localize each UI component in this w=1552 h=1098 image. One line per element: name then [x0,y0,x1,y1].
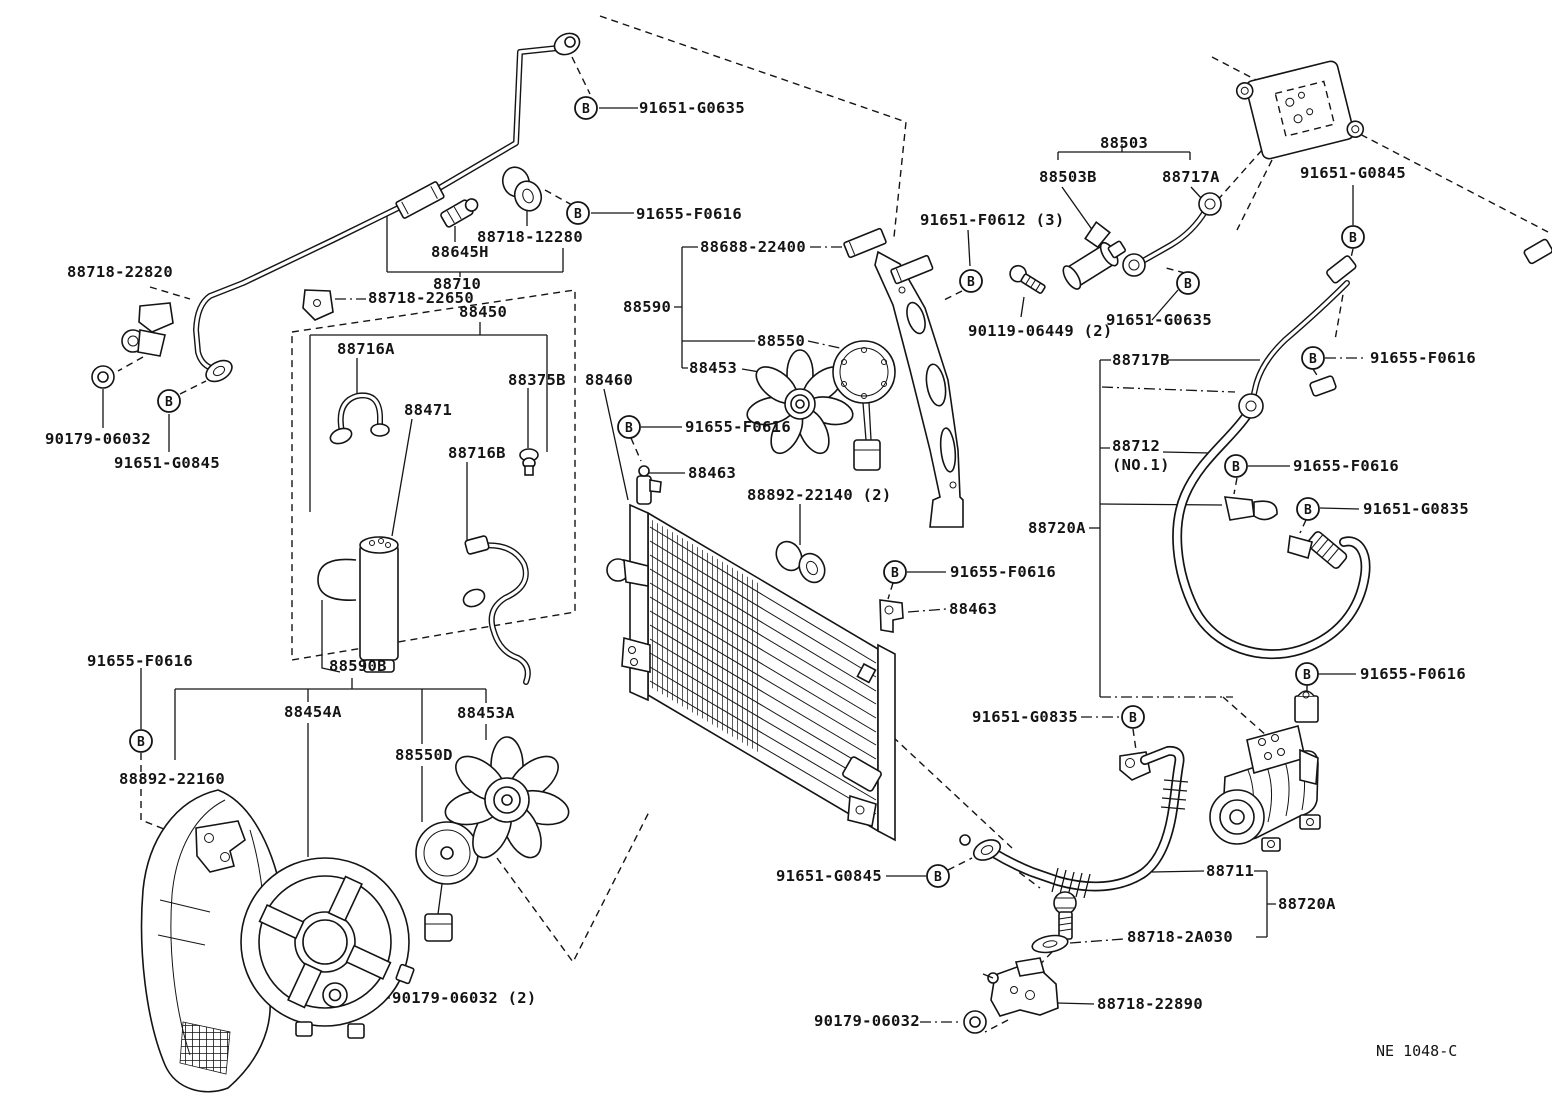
grommet-90179-06032-left2 [323,983,347,1007]
part-label-91651-F0612: 91651-F0612 (3) [920,211,1064,229]
block-91655-bolt-seat [1295,691,1318,722]
drawing-number: NE 1048-C [1376,1042,1457,1060]
bolt-b-icon: B [165,395,173,410]
valve-88645H [440,195,481,228]
condenser-88460 [607,505,895,840]
ac-parts-diagram: B B B B B B B B B B B B B B B 91651-G063… [0,0,1552,1098]
part-label-88718-22820: 88718-22820 [67,263,173,281]
discharge-hose-88711 [960,751,1188,898]
bolt-b-icon: B [625,421,633,436]
part-label-90179-06032: 90179-06032 [45,430,151,448]
part-label-88454A: 88454A [284,703,342,721]
part-label-91655-F0616d: 91655-F0616 [685,418,791,436]
part-label-88720A: 88720A [1028,519,1086,537]
bolt-b-icon: B [1232,460,1240,475]
part-label-88450: 88450 [459,303,507,321]
part-label-91651-G0835b: 91651-G0835 [972,708,1078,726]
part-label-88463b: 88463 [949,600,997,618]
grommet-90179-06032-bottom [964,1011,986,1033]
part-label-91651-G0635: 91651-G0635 [639,99,745,117]
bolt-88718-2A030 [1031,892,1076,955]
part-label-88716A: 88716A [337,340,395,358]
bracket-88718-22890 [983,958,1058,1016]
grommet-90179-06032-left [92,366,114,388]
compressor [1210,726,1320,851]
part-label-88590: 88590 [623,298,671,316]
bolt-b-icon: B [967,275,975,290]
part-label-91655-F0616c: 91655-F0616 [1293,457,1399,475]
fan-motor-88550D [416,822,478,941]
pipe-sleeve-88645H [395,181,444,218]
part-label-88688-22400: 88688-22400 [700,238,806,256]
part-label-88375B: 88375B [508,371,566,389]
part-label-91651-G0845c: 91651-G0845 [776,867,882,885]
plug-88375B [520,449,538,475]
part-label-88892-22140: 88892-22140 (2) [747,486,891,504]
part-label-88471: 88471 [404,401,452,419]
part-label-88460: 88460 [585,371,633,389]
bolt-b-icon: B [137,735,145,750]
part-label-88892-22160: 88892-22160 [119,770,225,788]
bolt-90119-06449 [1007,263,1048,297]
bolt-b-icon: B [891,566,899,581]
hose-88717B [1253,238,1552,398]
part-label-88453: 88453 [689,359,737,377]
part-label-91655-F0616e: 91655-F0616 [950,563,1056,581]
grommet-88718-12280 [499,163,546,214]
part-label-91651-G0635b: 91651-G0635 [1106,311,1212,329]
part-label-88550: 88550 [757,332,805,350]
bolt-b-icon: B [1129,711,1137,726]
bolt-b-icon: B [1309,352,1317,367]
hose-88717A [1123,193,1221,276]
bracket-88463-right [880,600,903,632]
part-label-90179-06032b: 90179-06032 [814,1012,920,1030]
part-label-88717A: 88717A [1162,168,1220,186]
bolt-b-icon: B [574,207,582,222]
bolt-b-icon: B [1349,231,1357,246]
part-label-88645H: 88645H [431,243,489,261]
bolt-b-icon: B [934,870,942,885]
sensor-88463-top [637,466,661,504]
part-label-90179-06032c: 90179-06032 (2) [392,989,536,1007]
relay-box [1235,57,1365,162]
part-label-90119-06449: 90119-06449 (2) [968,322,1112,340]
clamp-88718-22820 [122,303,173,356]
part-label-91655-F0616g: 91655-F0616 [1360,665,1466,683]
part-label-88503: 88503 [1100,134,1148,152]
part-label-91655-F0616f: 91655-F0616 [87,652,193,670]
part-label-91651-G0845b: 91651-G0845 [114,454,220,472]
part-label-88712-no1: (NO.1) [1112,456,1170,474]
part-label-91655-F0616: 91655-F0616 [636,205,742,223]
part-label-88716B: 88716B [448,444,506,462]
part-label-88590B: 88590B [329,657,387,675]
clamp-88718-22650 [303,290,333,320]
part-label-91655-F0616b: 91655-F0616 [1370,349,1476,367]
suction-hose-88712 [1177,394,1365,654]
part-label-88718-12280: 88718-12280 [477,228,583,246]
part-label-88550D: 88550D [395,746,453,764]
part-label-88453A: 88453A [457,704,515,722]
bolt-b-icon: B [1303,668,1311,683]
bolt-b-icon: B [1304,503,1312,518]
part-label-88718-22890: 88718-22890 [1097,995,1203,1013]
tube-88716B [461,535,528,682]
part-label-91651-G0845: 91651-G0845 [1300,164,1406,182]
receiver-drier-88471 [318,537,398,672]
part-label-88711: 88711 [1206,862,1254,880]
part-label-88712: 88712 [1112,437,1160,455]
bolt-b-icon: B [1184,277,1192,292]
tube-88716A [328,395,389,446]
part-label-88463: 88463 [688,464,736,482]
part-label-88720Ab: 88720A [1278,895,1336,913]
part-label-91651-G0835: 91651-G0835 [1363,500,1469,518]
part-label-88718-2A030: 88718-2A030 [1127,928,1233,946]
part-label-88503B: 88503B [1039,168,1097,186]
part-label-88717B: 88717B [1112,351,1170,369]
parts-diagram-page: B B B B B B B B B B B B B B B 91651-G063… [0,0,1552,1098]
bolt-b-icon: B [582,102,590,117]
